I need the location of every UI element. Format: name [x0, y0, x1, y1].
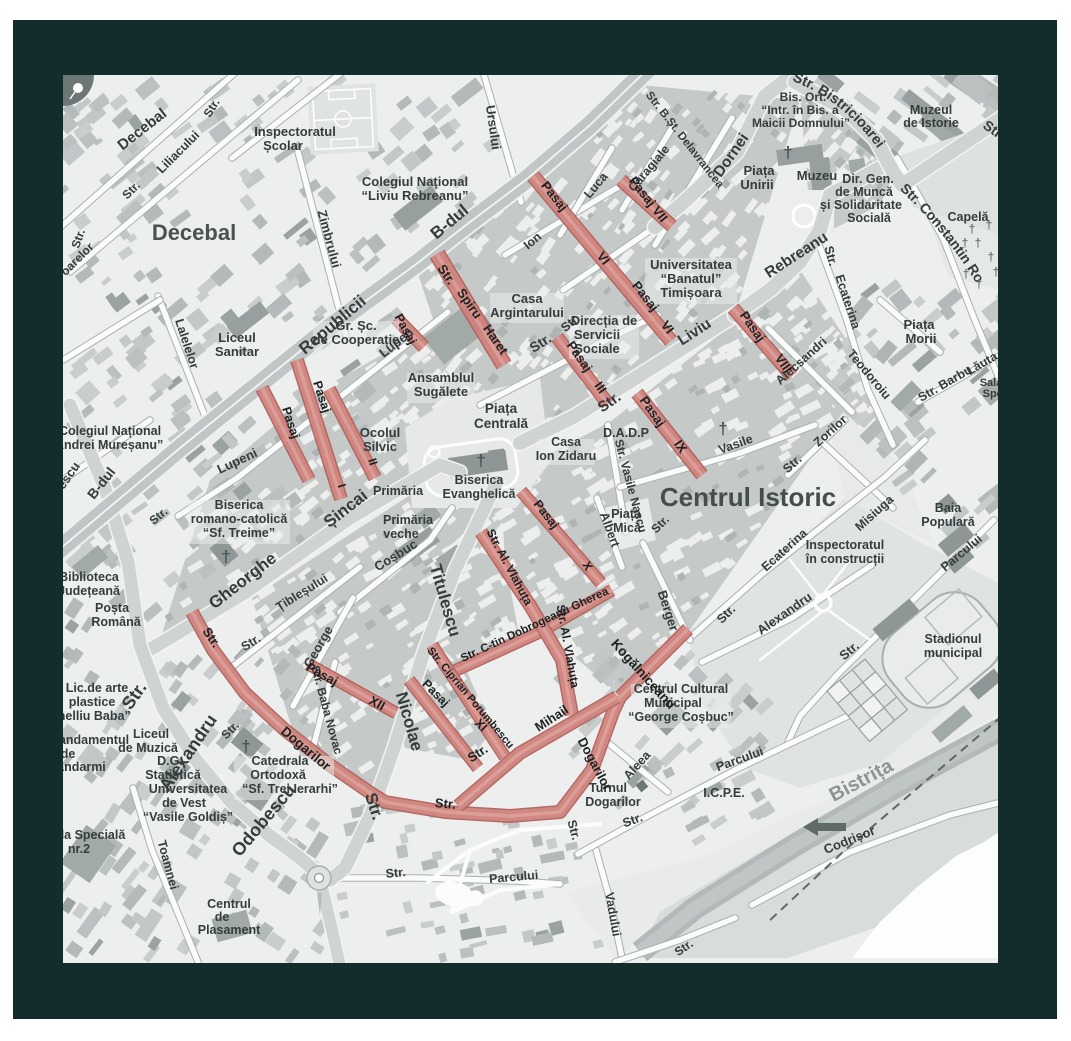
svg-text:“Sf. Trei Ierarhi”: “Sf. Trei Ierarhi”	[242, 782, 338, 796]
svg-text:de Muzică: de Muzică	[118, 741, 179, 755]
svg-text:Decebal: Decebal	[152, 220, 236, 245]
svg-text:Piața: Piața	[485, 401, 518, 416]
svg-text:†: †	[988, 250, 995, 264]
svg-text:Inspectoratul: Inspectoratul	[254, 124, 336, 139]
svg-text:“Sf. Treime”: “Sf. Treime”	[203, 526, 275, 540]
svg-text:Centrul Istoric: Centrul Istoric	[660, 482, 836, 512]
svg-text:“Intr. în Bis. a: “Intr. în Bis. a	[761, 103, 839, 117]
svg-text:de Vest: de Vest	[162, 796, 207, 810]
svg-text:†: †	[476, 451, 485, 470]
svg-text:Populară: Populară	[921, 515, 976, 529]
svg-text:†: †	[962, 236, 969, 250]
svg-text:Primăria: Primăria	[373, 484, 424, 498]
svg-text:†: †	[986, 218, 993, 232]
svg-text:Catedrala: Catedrala	[252, 754, 310, 768]
svg-text:Liceul: Liceul	[133, 727, 169, 741]
svg-text:Dogarilor: Dogarilor	[585, 795, 641, 809]
svg-text:“Andrei Mureșanu”: “Andrei Mureșanu”	[49, 438, 164, 452]
svg-text:Biblioteca: Biblioteca	[59, 570, 120, 584]
svg-text:Str.: Str.	[434, 795, 456, 812]
svg-text:Bis. Ort.: Bis. Ort.	[780, 90, 827, 104]
svg-text:Str.: Str.	[385, 865, 406, 881]
svg-text:Universitatea: Universitatea	[149, 782, 229, 796]
svg-text:Ortodoxă: Ortodoxă	[250, 768, 307, 782]
svg-text:Silvic: Silvic	[363, 439, 397, 454]
svg-text:Muzeu: Muzeu	[797, 168, 838, 183]
svg-text:“George Coșbuc”: “George Coșbuc”	[628, 710, 734, 724]
svg-text:Servicii: Servicii	[574, 327, 620, 342]
svg-text:Casa: Casa	[551, 435, 582, 449]
svg-text:“Banatul”: “Banatul”	[661, 271, 722, 286]
svg-text:nr.2: nr.2	[68, 842, 90, 856]
svg-text:“Liviu Rebreanu”: “Liviu Rebreanu”	[362, 188, 469, 203]
svg-text:și Solidaritate: și Solidaritate	[820, 198, 902, 212]
svg-text:Centrul: Centrul	[207, 897, 251, 911]
svg-text:Biserica: Biserica	[215, 498, 265, 512]
svg-text:†: †	[718, 419, 727, 438]
svg-text:Piața: Piața	[743, 163, 775, 178]
svg-text:Colegiul Național: Colegiul Național	[362, 174, 468, 189]
svg-text:†: †	[241, 737, 250, 756]
svg-text:D.G.: D.G.	[157, 754, 183, 768]
svg-text:Sanitar: Sanitar	[215, 344, 259, 359]
svg-text:municipal: municipal	[924, 646, 982, 660]
svg-text:†: †	[963, 267, 970, 281]
svg-text:de Muncă: de Muncă	[835, 185, 894, 199]
svg-text:Evanghelică: Evanghelică	[443, 487, 517, 501]
svg-text:de Istorie: de Istorie	[903, 116, 959, 130]
svg-text:Timișoara: Timișoara	[660, 285, 722, 300]
svg-text:Ion Zidaru: Ion Zidaru	[536, 449, 596, 463]
svg-text:Inspectoratul: Inspectoratul	[806, 538, 885, 552]
svg-text:Morii: Morii	[905, 331, 936, 346]
svg-text:de Cooperație: de Cooperație	[313, 332, 400, 347]
svg-text:Liceul: Liceul	[218, 330, 256, 345]
svg-text:Poșta: Poșta	[95, 601, 130, 615]
svg-text:Piața: Piața	[903, 317, 935, 332]
svg-text:Baia: Baia	[935, 501, 962, 515]
svg-text:Sugălete: Sugălete	[414, 384, 468, 399]
svg-text:I.C.P.E.: I.C.P.E.	[703, 786, 744, 800]
svg-text:†: †	[969, 222, 976, 236]
svg-text:Județeană: Județeană	[58, 584, 121, 598]
svg-text:Statistică: Statistică	[145, 768, 202, 782]
svg-text:Muzeul: Muzeul	[910, 103, 952, 117]
svg-text:Școlar: Școlar	[263, 138, 303, 153]
svg-text:Lic.de arte: Lic.de arte	[66, 681, 129, 695]
svg-text:Gr. Șc.: Gr. Șc.	[335, 318, 376, 333]
svg-text:†: †	[975, 236, 982, 250]
svg-text:†: †	[221, 547, 230, 566]
svg-text:“Vasile Goldiș”: “Vasile Goldiș”	[143, 810, 233, 824]
svg-text:Română: Română	[91, 615, 141, 629]
svg-text:Unirii: Unirii	[740, 177, 773, 192]
svg-text:romano-catolică: romano-catolică	[191, 512, 289, 526]
svg-text:Ocolul: Ocolul	[360, 425, 400, 440]
svg-text:Centrală: Centrală	[474, 416, 529, 431]
svg-text:Biserica: Biserica	[455, 473, 505, 487]
svg-text:Ansamblul: Ansamblul	[408, 370, 474, 385]
svg-text:Socială: Socială	[847, 211, 892, 225]
svg-text:Universitatea: Universitatea	[650, 257, 732, 272]
svg-text:Direcția de: Direcția de	[571, 313, 637, 328]
svg-text:Piața: Piața	[611, 507, 642, 521]
svg-text:†: †	[783, 143, 792, 162]
svg-text:Dir. Gen.: Dir. Gen.	[842, 172, 893, 186]
svg-text:†: †	[976, 277, 983, 291]
svg-text:Stadionul: Stadionul	[925, 632, 982, 646]
svg-text:de: de	[215, 910, 230, 924]
svg-text:în construcții: în construcții	[805, 552, 884, 566]
svg-text:plastice: plastice	[69, 695, 116, 709]
svg-text:Argintarului: Argintarului	[490, 305, 564, 320]
svg-text:Maicii Domnului”: Maicii Domnului”	[752, 116, 850, 130]
svg-text:Primăria: Primăria	[383, 513, 434, 527]
svg-text:Casa: Casa	[511, 291, 543, 306]
svg-text:la Specială: la Specială	[61, 828, 127, 842]
svg-text:Colegiul Național: Colegiul Național	[59, 424, 161, 438]
svg-text:Plasament: Plasament	[198, 923, 261, 937]
